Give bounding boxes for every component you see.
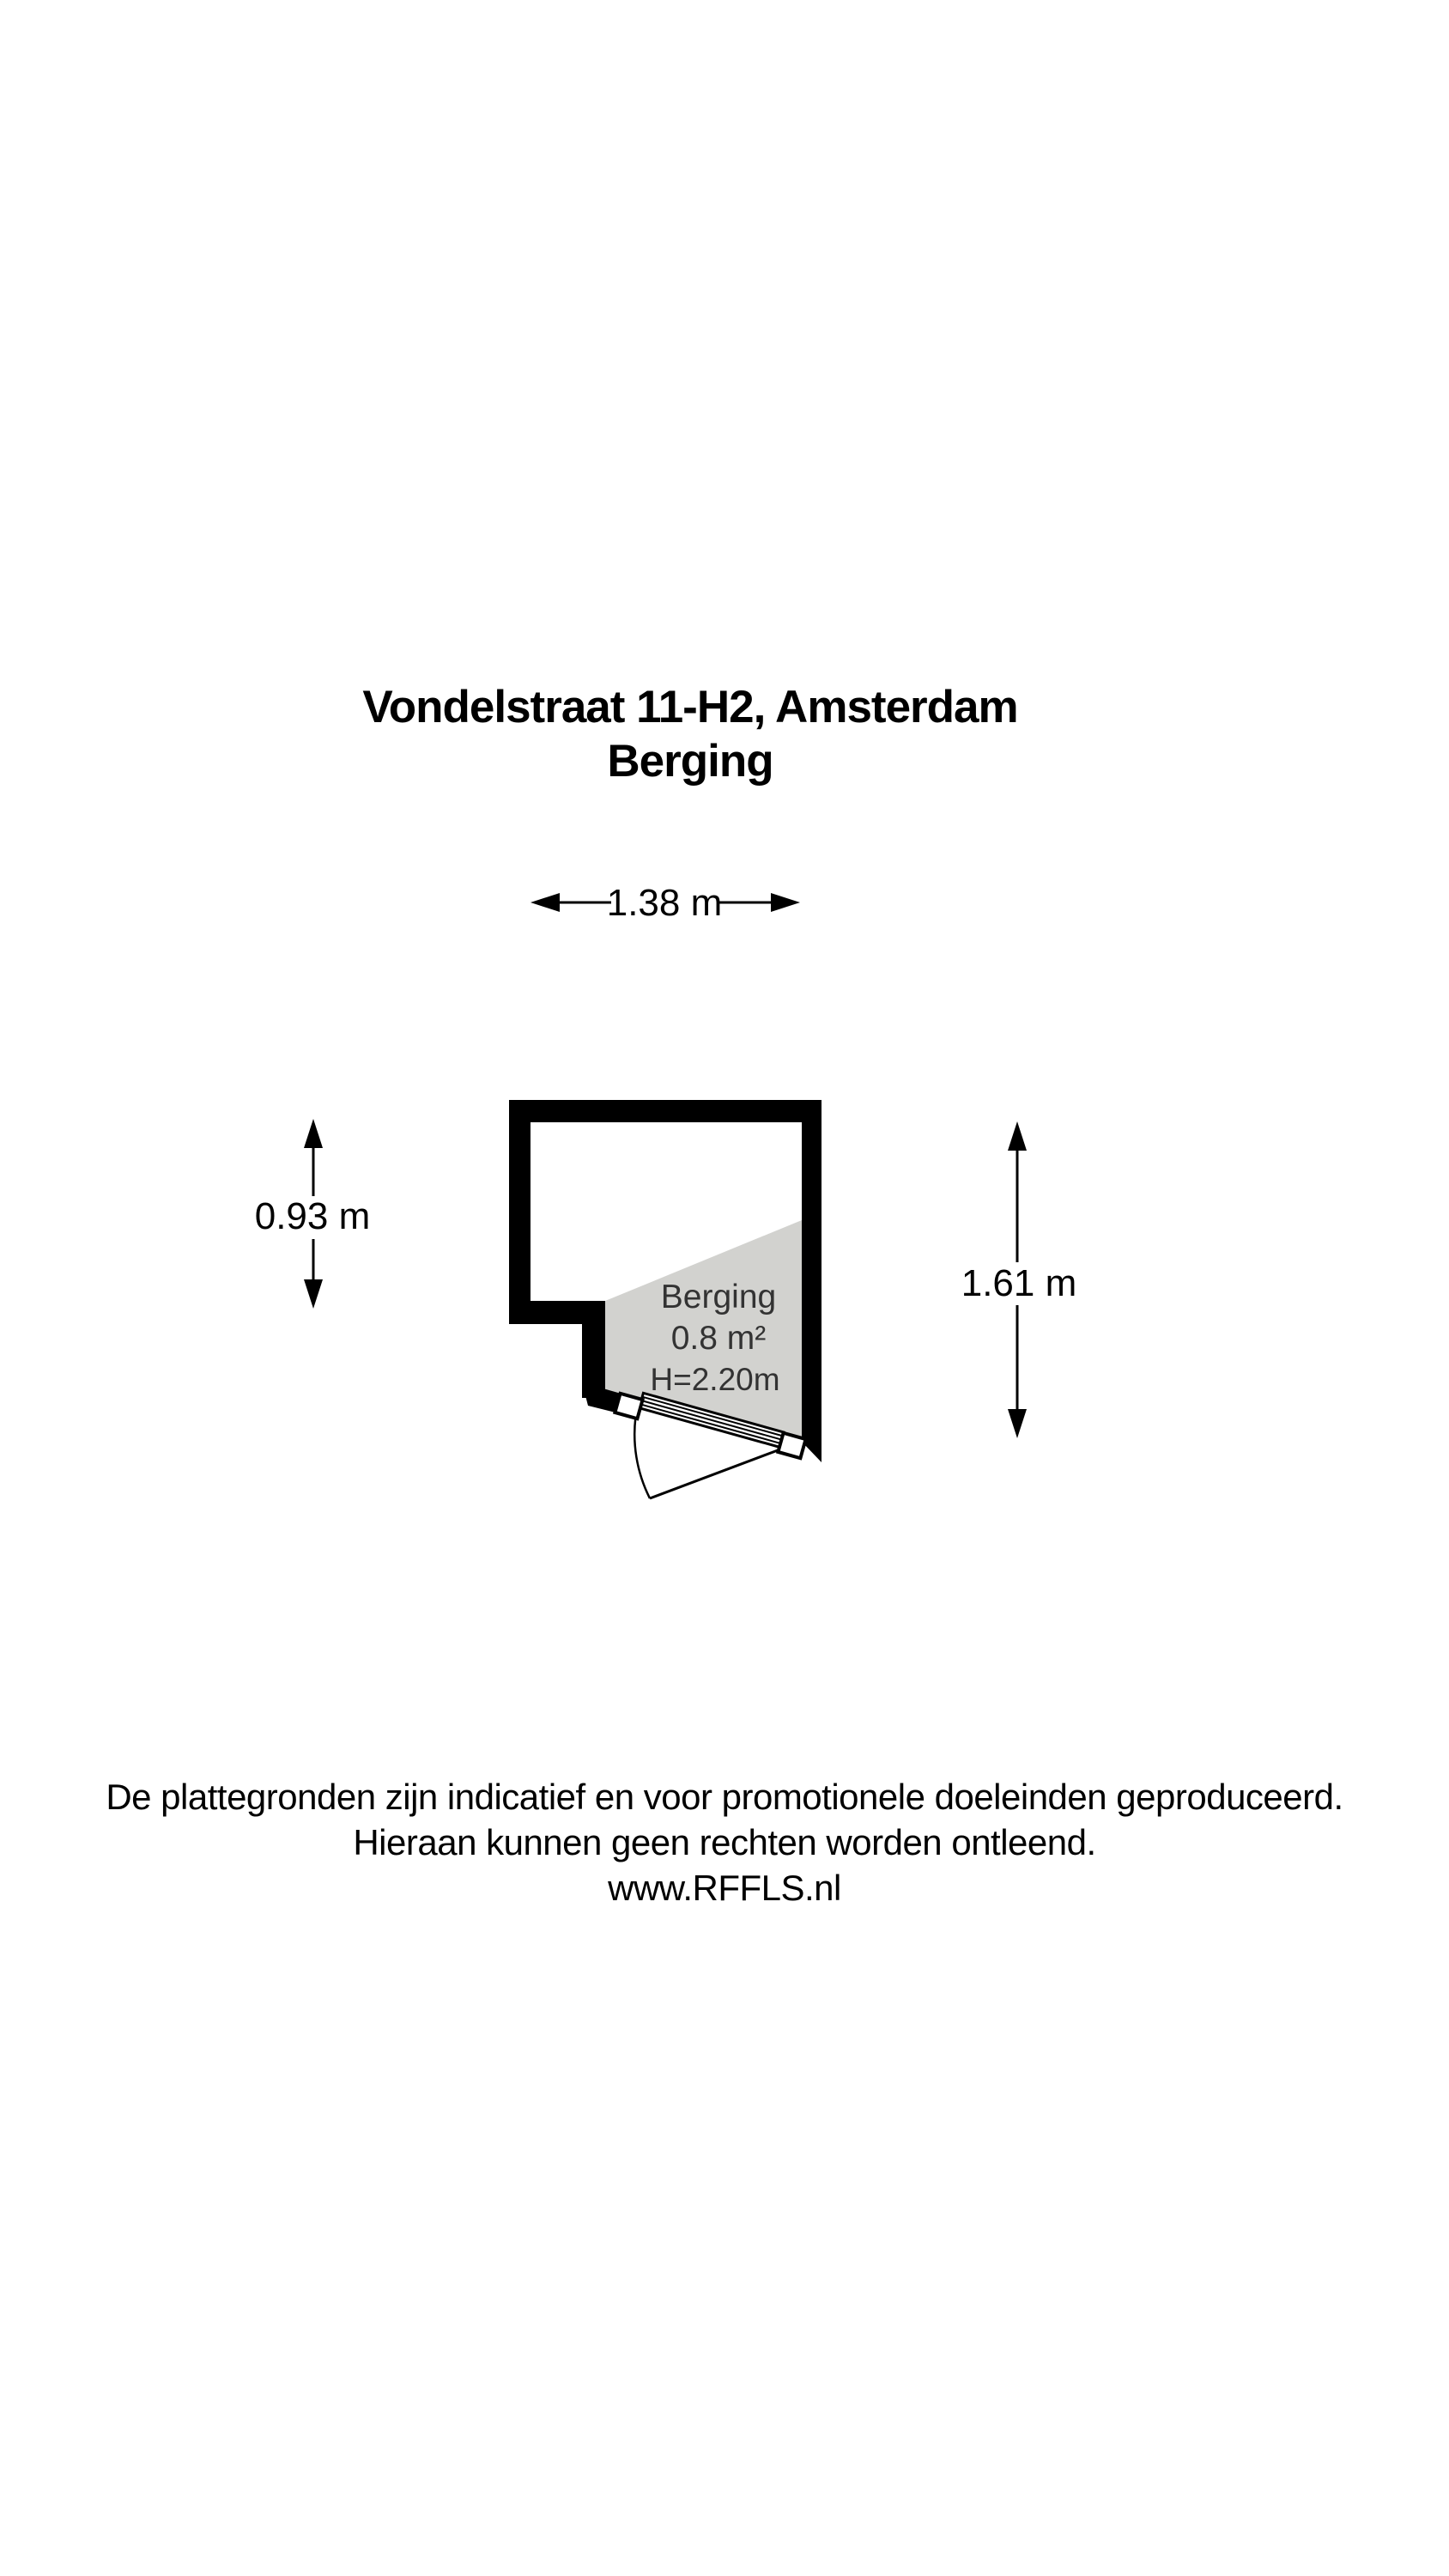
floorplan-page: Vondelstraat 11-H2, Amsterdam Berging 1.… [0, 0, 1449, 2576]
disclaimer: De plattegronden zijn indicatief en voor… [0, 1774, 1449, 1911]
disclaimer-website: www.RFFLS.nl [0, 1865, 1449, 1911]
dimension-left-label: 0.93 m [255, 1195, 371, 1237]
room-name-label: Berging [661, 1279, 776, 1315]
door-post-left [615, 1394, 642, 1419]
arrowhead-down-icon [1008, 1409, 1027, 1438]
door-post-right [778, 1433, 805, 1458]
arrowhead-up-icon [304, 1119, 323, 1148]
title-address: Vondelstraat 11-H2, Amsterdam [0, 680, 1380, 734]
wall-step-vertical [582, 1301, 605, 1398]
wall-left [509, 1100, 530, 1324]
arrowhead-up-icon [1008, 1121, 1027, 1151]
dimension-right-label: 1.61 m [961, 1262, 1077, 1304]
dimension-right: 1.61 m [961, 1121, 1077, 1438]
dimension-left: 0.93 m [255, 1119, 371, 1309]
room-height-label: H=2.20m [650, 1362, 779, 1397]
disclaimer-line-1: De plattegronden zijn indicatief en voor… [0, 1774, 1449, 1820]
arrowhead-left-icon [530, 893, 560, 912]
disclaimer-line-2: Hieraan kunnen geen rechten worden ontle… [0, 1820, 1449, 1865]
wall-top [509, 1100, 822, 1122]
wall-right [802, 1100, 822, 1462]
floorplan-drawing: 1.38 m 0.93 m 1.61 m 1.00 m [0, 859, 1449, 1563]
dimension-top: 1.38 m [530, 882, 800, 924]
door-swing-arc [634, 1413, 650, 1498]
plan-title: Vondelstraat 11-H2, Amsterdam Berging [0, 680, 1380, 788]
arrowhead-right-icon [771, 893, 800, 912]
arrowhead-down-icon [304, 1279, 323, 1309]
room-area-label: 0.8 m² [671, 1320, 767, 1357]
dimension-top-label: 1.38 m [607, 882, 723, 924]
title-room-name: Berging [0, 734, 1380, 788]
door-leaf-open [650, 1450, 778, 1498]
